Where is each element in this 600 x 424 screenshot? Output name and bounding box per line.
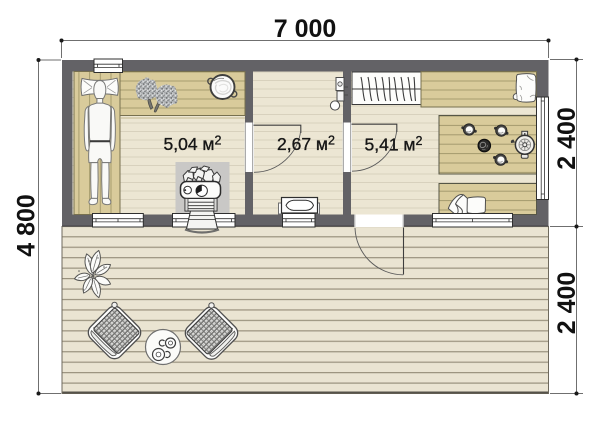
svg-text:5,41 м2: 5,41 м2	[365, 134, 423, 155]
svg-text:4 800: 4 800	[13, 194, 41, 257]
svg-text:2,67 м2: 2,67 м2	[277, 134, 335, 155]
svg-text:2 400: 2 400	[553, 272, 581, 335]
svg-text:2 400: 2 400	[553, 107, 581, 170]
svg-text:5,04 м2: 5,04 м2	[164, 134, 222, 155]
svg-text:7 000: 7 000	[274, 15, 337, 43]
